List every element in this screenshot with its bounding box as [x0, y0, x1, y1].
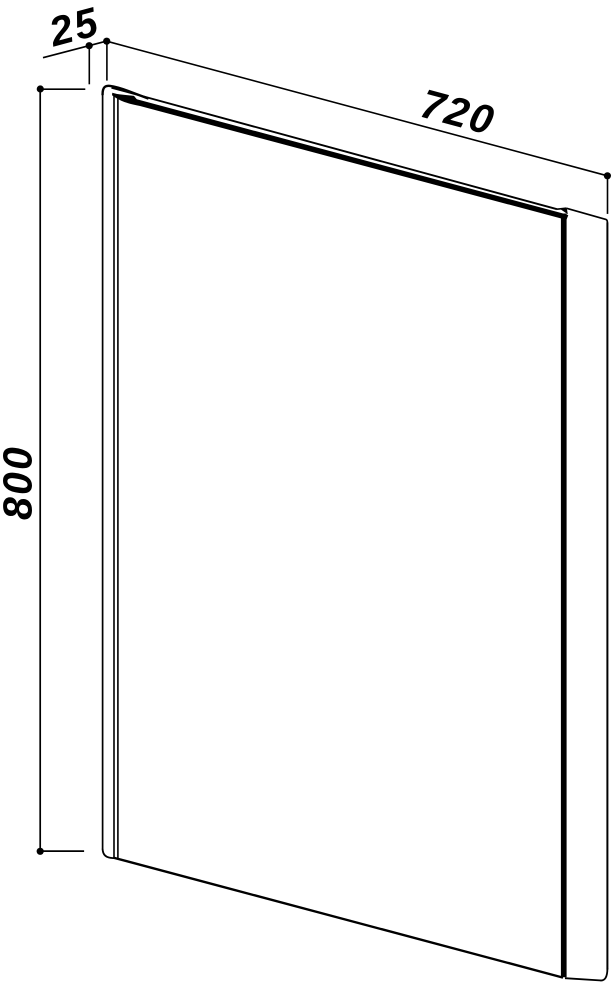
svg-text:800: 800 — [0, 445, 41, 520]
